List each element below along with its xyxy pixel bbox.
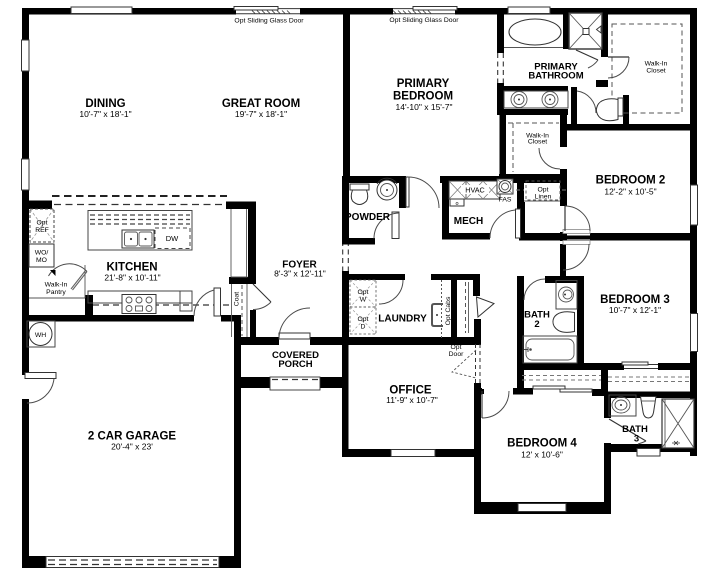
svg-text:19'-7" x 18'-1": 19'-7" x 18'-1" [235, 109, 287, 119]
svg-text:Closet: Closet [646, 68, 665, 75]
svg-text:10'-7" x 18'-1": 10'-7" x 18'-1" [79, 109, 131, 119]
svg-text:Opt: Opt [358, 316, 369, 323]
svg-text:BEDROOM 2: BEDROOM 2 [596, 175, 666, 187]
svg-text:2: 2 [534, 319, 539, 330]
svg-text:14'-10" x 15'-7": 14'-10" x 15'-7" [395, 102, 452, 112]
svg-text:DW: DW [166, 234, 179, 243]
svg-text:WO/: WO/ [35, 250, 49, 257]
svg-text:Opt Cabs: Opt Cabs [445, 296, 452, 325]
svg-text:Opt: Opt [451, 344, 462, 351]
svg-text:W: W [360, 297, 367, 304]
svg-text:POWDER: POWDER [345, 212, 391, 223]
svg-text:11'-9" x 10'-7": 11'-9" x 10'-7" [386, 395, 438, 405]
svg-text:D: D [361, 324, 366, 331]
svg-text:Opt Sliding Glass Door: Opt Sliding Glass Door [389, 17, 459, 24]
svg-text:10'-7" x 12'-1": 10'-7" x 12'-1" [609, 305, 661, 315]
svg-text:MO: MO [36, 257, 47, 264]
svg-text:REF: REF [35, 227, 49, 234]
svg-text:Opt: Opt [538, 187, 549, 194]
svg-text:WH: WH [35, 332, 46, 339]
svg-text:PRIMARY: PRIMARY [397, 78, 450, 90]
svg-text:o: o [455, 201, 458, 207]
svg-text:12' x 10'-6": 12' x 10'-6" [521, 450, 563, 460]
svg-text:Walk-In: Walk-In [645, 61, 668, 68]
svg-text:20'-4" x 23': 20'-4" x 23' [111, 442, 153, 452]
svg-text:Coat: Coat [234, 292, 241, 306]
svg-text:LAUNDRY: LAUNDRY [378, 314, 427, 325]
svg-text:Door: Door [449, 351, 464, 358]
svg-text:12'-2" x 10'-5": 12'-2" x 10'-5" [604, 187, 656, 197]
svg-text:BATHROOM: BATHROOM [528, 71, 583, 82]
svg-text:Walk-In: Walk-In [45, 282, 68, 289]
svg-text:21'-8" x 10'-11": 21'-8" x 10'-11" [104, 273, 160, 283]
svg-text:Opt: Opt [358, 289, 369, 296]
svg-text:HVAC: HVAC [465, 186, 484, 195]
svg-text:Opt Sliding Glass Door: Opt Sliding Glass Door [234, 18, 304, 25]
svg-text:Closet: Closet [528, 139, 547, 146]
svg-text:Opt: Opt [37, 220, 48, 227]
svg-text:PORCH: PORCH [278, 359, 312, 370]
svg-text:3: 3 [634, 433, 639, 444]
svg-text:MECH: MECH [454, 216, 483, 227]
svg-text:BEDROOM: BEDROOM [393, 91, 453, 103]
svg-text:FAS: FAS [499, 197, 512, 204]
svg-text:Pantry: Pantry [46, 289, 66, 296]
svg-text:Linen: Linen [535, 194, 552, 201]
svg-text:BEDROOM 4: BEDROOM 4 [507, 438, 577, 450]
svg-text:8'-3" x 12'-11": 8'-3" x 12'-11" [274, 269, 326, 279]
